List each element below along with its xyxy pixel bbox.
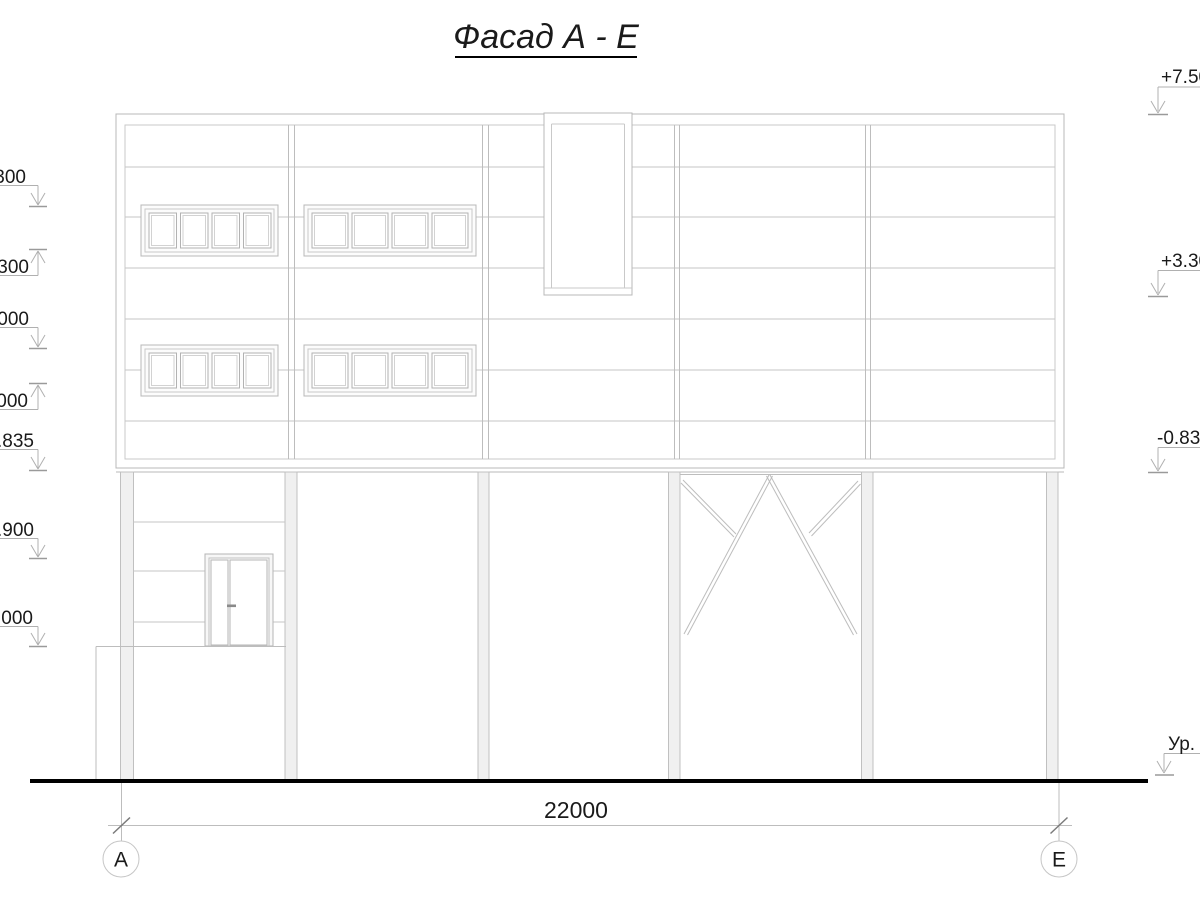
elevation-mark: .835	[0, 431, 47, 471]
elevation-mark: +3.30	[1148, 251, 1200, 297]
elevation-mark: 300	[0, 167, 47, 207]
window-row2-right	[304, 345, 476, 396]
elevation-value: .000	[0, 608, 33, 629]
door-leaf-right	[230, 560, 267, 645]
drawing-sheet: Фасад А - Е	[0, 0, 1200, 900]
portal-bracing	[680, 475, 861, 636]
elevation-mark: 000	[0, 384, 47, 413]
elevation-value: +7.50	[1161, 67, 1200, 88]
window-row2-left	[141, 345, 278, 396]
elevation-value: 000	[0, 309, 29, 330]
elevation-mark: -0.83	[1148, 428, 1200, 473]
elevation-value: .835	[0, 431, 34, 452]
elevation-value: 000	[0, 391, 28, 412]
elevation-value: 300	[0, 167, 26, 188]
entrance-door	[205, 554, 273, 646]
elevation-value: +3.30	[1161, 251, 1200, 272]
facade-tower	[544, 113, 632, 295]
left-elevation-marks: 300 300 000 000 .835	[0, 167, 47, 647]
elevation-value: .900	[0, 520, 34, 541]
axis-label-e: Е	[1052, 849, 1066, 872]
right-elevation-marks: +7.50 +3.30 -0.83 Ур.	[1148, 67, 1200, 775]
elevation-mark: .000	[0, 608, 47, 647]
elevation-mark: 300	[0, 250, 47, 279]
window-row1-left	[141, 205, 278, 256]
elevation-value: Ур.	[1168, 734, 1195, 755]
elevation-mark: 000	[0, 309, 47, 349]
axis-bubbles: А Е	[103, 841, 1077, 877]
elevation-value: 300	[0, 257, 29, 278]
facade-drawing-canvas: Фасад А - Е	[0, 0, 1200, 900]
lower-level	[96, 472, 1064, 782]
elevation-value: -0.83	[1157, 428, 1200, 449]
dimension-value: 22000	[544, 797, 608, 823]
door-leaf-left	[211, 560, 228, 645]
elevation-mark: .900	[0, 520, 47, 559]
window-row1-right	[304, 205, 476, 256]
elevation-mark: +7.50	[1148, 67, 1200, 115]
axis-label-a: А	[114, 849, 128, 872]
elevation-mark-ground-level: Ур.	[1155, 734, 1200, 775]
door-handle	[227, 605, 236, 608]
dimension-22000: 22000	[108, 783, 1072, 841]
drawing-title: Фасад А - Е	[453, 18, 639, 56]
